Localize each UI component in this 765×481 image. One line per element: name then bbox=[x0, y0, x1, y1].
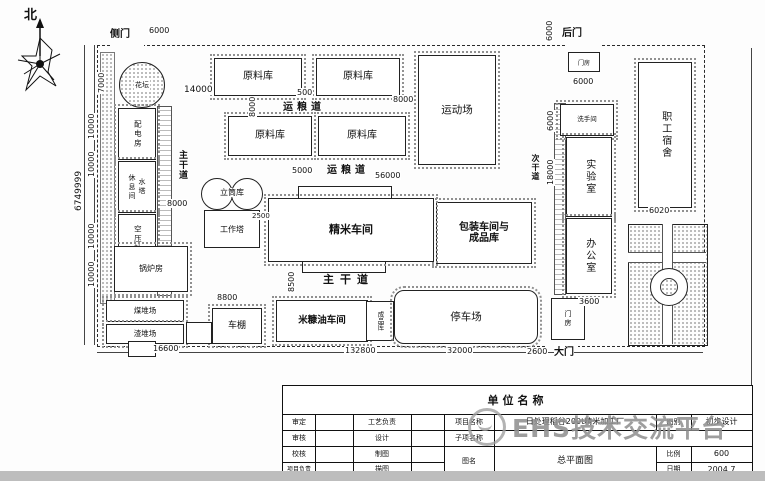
main-road-label: 主干道 bbox=[323, 271, 374, 287]
draft-cell: 制图 bbox=[353, 446, 411, 462]
dim-5000: 5000 bbox=[291, 166, 313, 175]
back-gate-opening bbox=[566, 39, 600, 51]
dim-16600: 16600 bbox=[152, 344, 179, 353]
parking-lot: 停车场 bbox=[394, 290, 538, 344]
dim-6000-gatehouse: 6000 bbox=[572, 77, 594, 86]
power-distribution-room: 配电房 bbox=[118, 108, 156, 160]
dim-6000-backgate: 6000 bbox=[545, 20, 554, 42]
flower-bed: 花坛 bbox=[119, 62, 165, 108]
site-plan-drawing: 北 侧门 后门 大门 花坛 配电房 休息间 水塔 空压站 锅炉房 煤堆场 渣堆场… bbox=[0, 0, 765, 481]
left-overall-dimension-line bbox=[84, 45, 85, 345]
dim-8500: 8500 bbox=[287, 271, 296, 293]
dim-10000-4: 10000 bbox=[87, 261, 96, 288]
rest-room-label: 休息间 bbox=[128, 174, 136, 201]
company-name-cell: 单位名称 bbox=[283, 386, 752, 414]
silo-label: 立筒库 bbox=[203, 187, 261, 198]
small-annex-box bbox=[186, 322, 212, 344]
coal-yard: 煤堆场 bbox=[106, 300, 184, 322]
staff-dormitory: 职工宿舍 bbox=[638, 62, 692, 208]
back-gate-label: 后门 bbox=[562, 24, 582, 39]
dim-500: 500 bbox=[296, 88, 313, 97]
scale-value-cell: 600 bbox=[691, 446, 752, 462]
review-cell: 审核 bbox=[283, 430, 315, 446]
dim-2500: 2500 bbox=[251, 212, 271, 220]
check-cell: 校核 bbox=[283, 446, 315, 462]
packing-workshop: 包装车间与 成品库 bbox=[436, 202, 532, 264]
water-tower-label: 水塔 bbox=[138, 178, 146, 196]
office-building: 办公室 bbox=[566, 218, 612, 294]
project-name-label-cell: 项目名称 bbox=[444, 414, 494, 430]
raw-warehouse-1: 原料库 bbox=[214, 58, 302, 96]
dim-10000-1: 10000 bbox=[87, 113, 96, 140]
garden-fountain bbox=[650, 268, 688, 306]
dim-8000-sports: 8000 bbox=[392, 95, 414, 104]
subitem-label-cell: 子项名称 bbox=[444, 430, 494, 446]
scale-label-cell: 比例 bbox=[656, 446, 691, 462]
milling-workshop: 精米车间 bbox=[268, 198, 434, 262]
photo-bottom-edge bbox=[0, 471, 765, 481]
gatehouse-top: 门房 bbox=[568, 52, 600, 72]
sports-ground: 运动场 bbox=[418, 55, 496, 165]
dim-10000-3: 10000 bbox=[87, 223, 96, 250]
north-label: 北 bbox=[24, 4, 37, 23]
dim-56000: 56000 bbox=[374, 171, 401, 180]
design-cell: 设计 bbox=[353, 430, 411, 446]
stage-label-cell: 图别 bbox=[656, 414, 691, 430]
dim-14000: 14000 bbox=[183, 85, 214, 95]
secondary-road-label: 次干道 bbox=[530, 154, 541, 181]
dim-6020: 6020 bbox=[648, 206, 670, 215]
dim-8000-road: 8000 bbox=[166, 199, 188, 208]
dim-32000: 32000 bbox=[446, 346, 473, 355]
title-block: 单位名称 审定 审核 校核 项目负责 工艺负责 设计 制图 描图 项目名称 日处… bbox=[282, 385, 753, 478]
side-gate-label: 侧门 bbox=[110, 25, 130, 40]
left-dimension-line bbox=[94, 45, 95, 345]
laboratory: 实验室 bbox=[566, 137, 612, 217]
bottom-dimension-line bbox=[97, 352, 703, 353]
dim-8800: 8800 bbox=[216, 293, 238, 302]
raw-warehouse-4: 原料库 bbox=[318, 116, 406, 156]
dim-2600: 2600 bbox=[526, 347, 548, 356]
approve-cell: 审定 bbox=[283, 414, 315, 430]
dim-side-gate: 6000 bbox=[148, 26, 170, 35]
project-name-value-cell: 日处理稻谷200t精米加工厂 bbox=[494, 414, 656, 430]
boiler-room: 锅炉房 bbox=[114, 246, 188, 292]
main-road-vertical-label: 主干道 bbox=[176, 150, 189, 180]
raw-warehouse-2: 原料库 bbox=[316, 58, 400, 96]
grain-road-label-1: 运粮道 bbox=[283, 98, 325, 113]
water-tower-rest-room: 休息间 水塔 bbox=[118, 161, 156, 213]
side-gate-opening bbox=[110, 39, 144, 51]
bran-oil-workshop: 米糠油车间 bbox=[276, 300, 368, 342]
dim-3600: 3600 bbox=[578, 297, 600, 306]
raw-warehouse-3: 原料库 bbox=[228, 116, 312, 156]
dim-7000: 7000 bbox=[97, 72, 106, 94]
process-lead-cell: 工艺负责 bbox=[353, 414, 411, 430]
fountain-center bbox=[660, 278, 678, 296]
dim-total-height: 6749999 bbox=[74, 170, 84, 212]
dim-8000-grainroad: 8000 bbox=[248, 96, 257, 118]
washroom: 洗手间 bbox=[560, 104, 614, 136]
finished-product-store: 成品库 bbox=[366, 301, 394, 341]
dim-10000-2: 10000 bbox=[87, 151, 96, 178]
dim-6000-washroom: 6000 bbox=[546, 110, 555, 132]
grain-road-label-2: 运粮道 bbox=[327, 161, 369, 176]
bike-shed: 车棚 bbox=[212, 308, 262, 344]
dim-18000-lab: 18000 bbox=[546, 159, 555, 186]
stage-value-cell: 初步设计 bbox=[691, 414, 752, 430]
main-gate-label: 大门 bbox=[554, 343, 574, 358]
dim-132800: 132800 bbox=[344, 346, 377, 355]
north-arrow-icon bbox=[4, 16, 76, 102]
